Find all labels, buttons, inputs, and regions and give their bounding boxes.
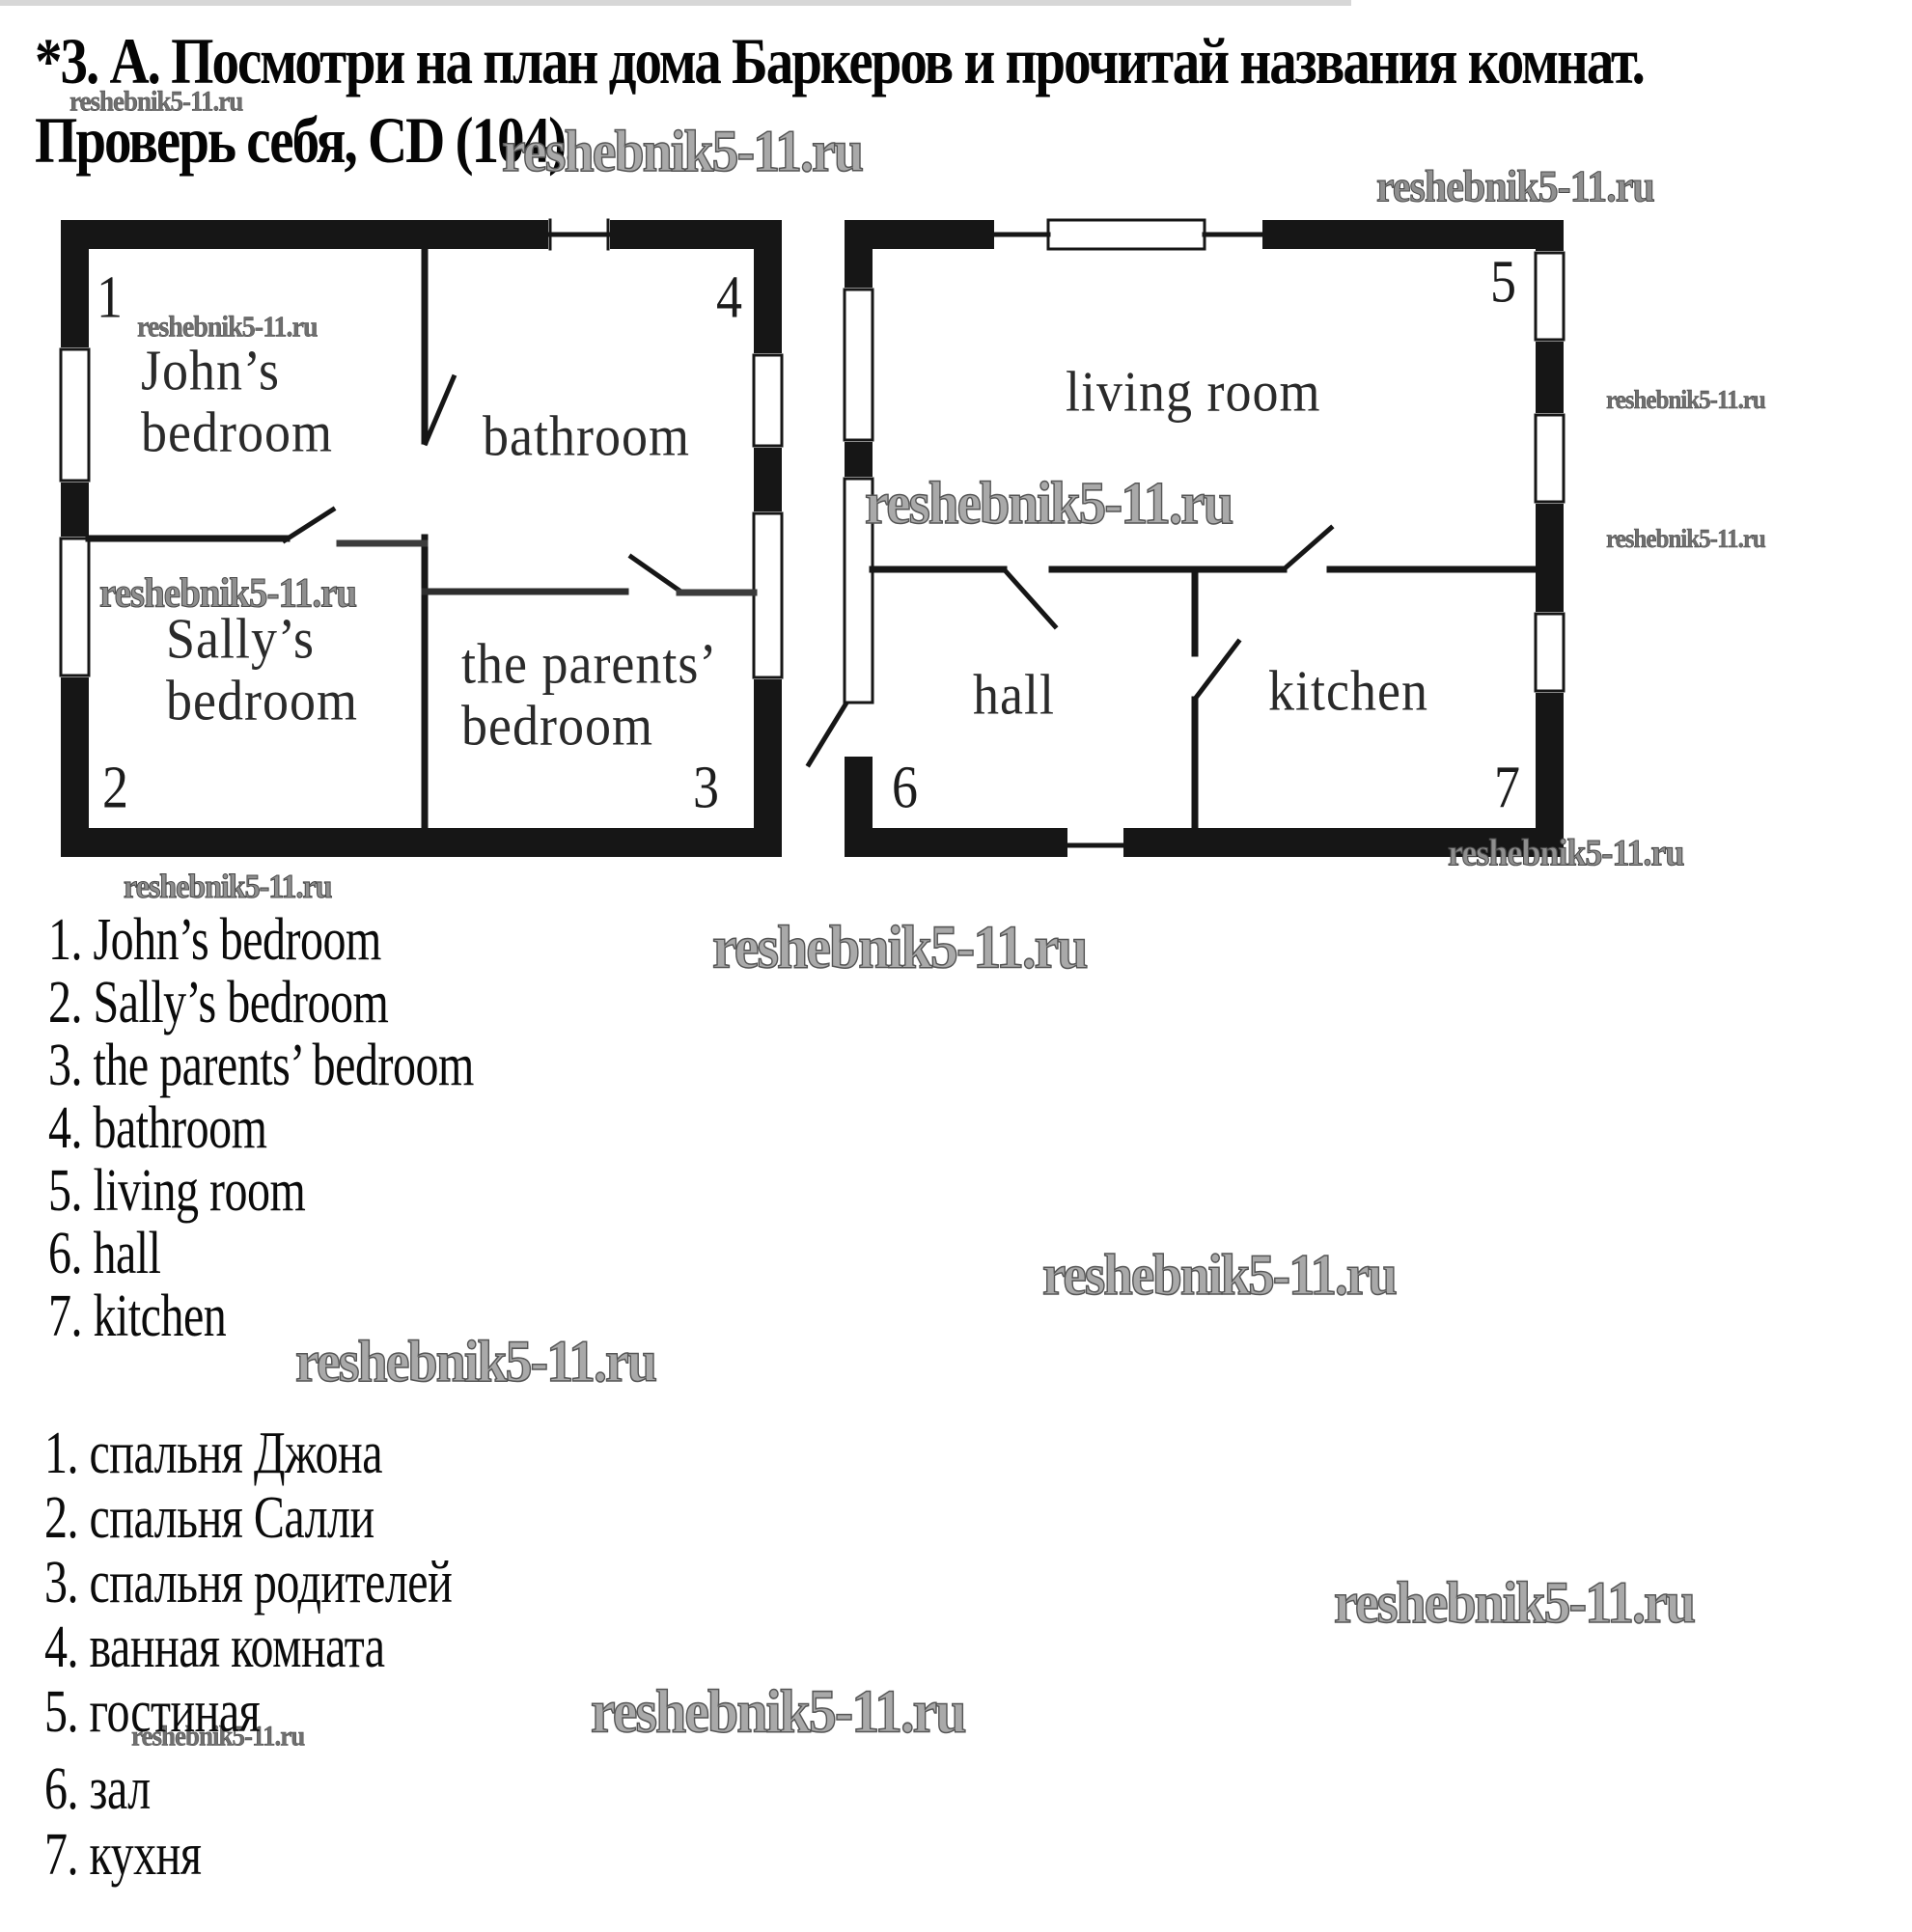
room-label-line: bedroom	[461, 695, 717, 757]
answer-en-item: 6. hall	[48, 1219, 160, 1288]
watermark: reshebnik5-11.ru	[124, 867, 331, 906]
answer-en-item: 2. Sally’s bedroom	[48, 968, 388, 1037]
watermark: reshebnik5-11.ru	[1042, 1241, 1396, 1308]
answer-ru-item: 1. спальня Джона	[44, 1419, 382, 1488]
room-label-line: Sally’s	[166, 608, 358, 670]
watermark: reshebnik5-11.ru	[295, 1328, 655, 1395]
watermark: reshebnik5-11.ru	[502, 118, 862, 185]
answer-en-item: 4. bathroom	[48, 1093, 266, 1163]
answer-ru-item: 3. спальня родителей	[44, 1548, 452, 1617]
answer-en-item: 5. living room	[48, 1156, 305, 1226]
page-title-line1: *3. А. Посмотри на план дома Баркеров и …	[35, 25, 1644, 99]
floor-plan-right	[809, 214, 1571, 867]
room-label-kitchen: kitchen	[1268, 660, 1428, 722]
watermark: reshebnik5-11.ru	[1606, 525, 1765, 555]
room-label-line: bedroom	[141, 401, 333, 463]
room-label-johns-bedroom: John’s bedroom	[141, 340, 333, 463]
watermark: reshebnik5-11.ru	[1448, 830, 1683, 874]
room-label-bathroom: bathroom	[483, 405, 690, 467]
room-label-line: the parents’	[461, 633, 717, 695]
watermark: reshebnik5-11.ru	[1376, 162, 1654, 213]
answer-ru-item: 4. ванная комната	[44, 1613, 385, 1682]
answer-en-item: 7. kitchen	[48, 1282, 226, 1351]
room-label-hall: hall	[973, 664, 1055, 726]
watermark: reshebnik5-11.ru	[1606, 386, 1765, 416]
watermark: reshebnik5-11.ru	[69, 85, 242, 118]
room-label-parents-bedroom: the parents’ bedroom	[461, 633, 717, 757]
answer-ru-item: 5. гостиная	[44, 1677, 260, 1747]
room-number-3: 3	[693, 753, 719, 821]
watermark: reshebnik5-11.ru	[712, 911, 1087, 982]
room-number-4: 4	[716, 262, 742, 331]
answer-ru-item: 6. зал	[44, 1754, 151, 1824]
room-number-2: 2	[102, 753, 128, 821]
room-number-1: 1	[97, 262, 123, 331]
watermark: reshebnik5-11.ru	[591, 1675, 965, 1747]
room-number-7: 7	[1494, 753, 1520, 821]
room-label-sallys-bedroom: Sally’s bedroom	[166, 608, 358, 731]
answer-en-item: 1. John’s bedroom	[48, 905, 381, 975]
room-number-5: 5	[1490, 247, 1516, 316]
watermark: reshebnik5-11.ru	[1334, 1569, 1694, 1637]
answer-ru-item: 2. спальня Салли	[44, 1483, 374, 1553]
answer-en-item: 3. the parents’ bedroom	[48, 1031, 474, 1100]
room-label-living-room: living room	[1066, 361, 1321, 423]
watermark: reshebnik5-11.ru	[865, 469, 1232, 538]
room-label-line: John’s	[141, 340, 333, 401]
room-label-line: bedroom	[166, 670, 358, 731]
answer-ru-item: 7. кухня	[44, 1820, 201, 1890]
scanned-answer-page: *3. А. Посмотри на план дома Баркеров и …	[0, 0, 1912, 1932]
room-number-6: 6	[892, 753, 918, 821]
